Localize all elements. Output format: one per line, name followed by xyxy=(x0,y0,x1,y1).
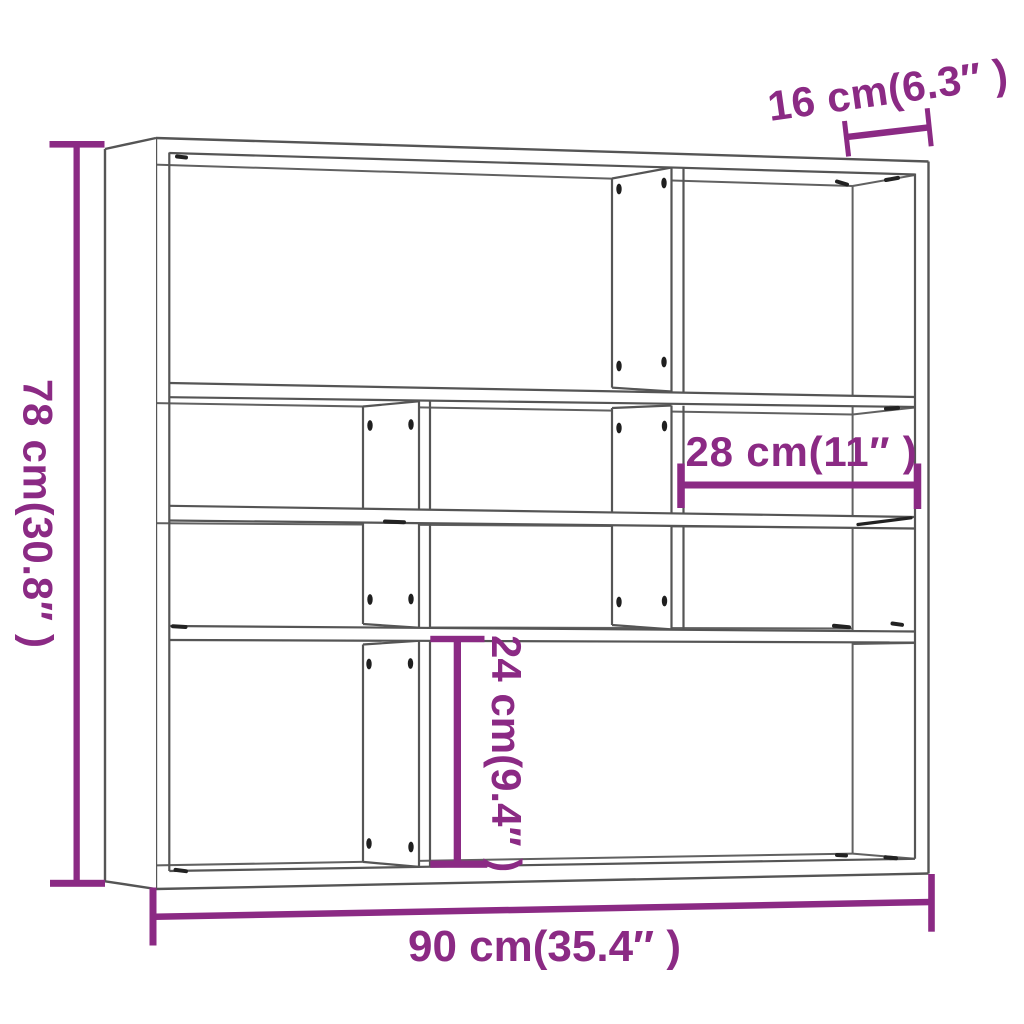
svg-text:78 cm(30.8″ ): 78 cm(30.8″ ) xyxy=(15,379,62,649)
svg-text:28 cm(11″ ): 28 cm(11″ ) xyxy=(686,428,918,475)
svg-text:90 cm(35.4″ ): 90 cm(35.4″ ) xyxy=(408,922,681,971)
svg-text:24 cm(9.4″ ): 24 cm(9.4″ ) xyxy=(483,635,530,872)
